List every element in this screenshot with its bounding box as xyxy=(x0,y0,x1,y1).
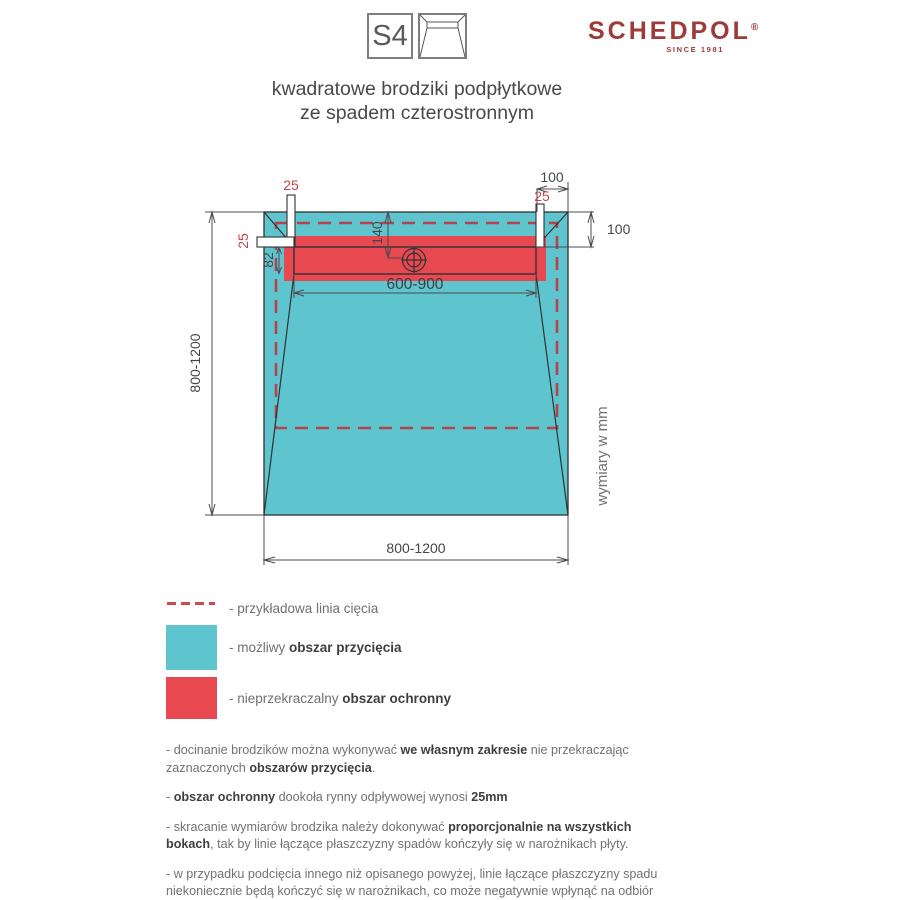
footnotes: - docinanie brodzików można wykonywać we… xyxy=(166,742,678,900)
product-code-badge: S4 xyxy=(367,13,413,59)
page: S4 SCHEDPOL® SINCE 1981 kwadratowe brodz… xyxy=(0,0,900,900)
dim-drain-offset: 140 xyxy=(369,221,385,245)
units-note: wymiary w mm xyxy=(594,406,611,506)
dim-tray-width: 800-1200 xyxy=(386,540,445,556)
legend-cut-area-label: - możliwy obszar przycięcia xyxy=(229,640,402,655)
dim-top-margin-25: 25 xyxy=(283,177,299,193)
dim-channel-width: 82 xyxy=(260,252,276,268)
tray-shape-icon xyxy=(418,13,467,59)
note-1: - docinanie brodzików można wykonywać we… xyxy=(166,742,678,777)
schedpol-logo: SCHEDPOL® SINCE 1981 xyxy=(588,15,748,54)
note-3: - skracanie wymiarów brodzika należy dok… xyxy=(166,819,678,854)
legend-cut-line-label: - przykładowa linia cięcia xyxy=(229,601,378,616)
page-title: kwadratowe brodziki podpłytkowe ze spade… xyxy=(167,78,667,125)
legend-cut-area-swatch xyxy=(166,625,217,670)
dim-tray-height: 800-1200 xyxy=(187,333,203,392)
technical-diagram: 25 25 25 100 100 140 82 600-900 800-1200… xyxy=(160,160,660,580)
dim-edge-offset-top: 100 xyxy=(540,169,564,185)
title-line-1: kwadratowe brodziki podpłytkowe xyxy=(167,78,667,102)
brand-tagline: SINCE 1981 xyxy=(588,45,724,54)
note-2: - obszar ochronny dookoła rynny odpływow… xyxy=(166,789,678,807)
note-4: - w przypadku podcięcia innego niż opisa… xyxy=(166,866,678,900)
title-line-2: ze spadem czterostronnym xyxy=(167,102,667,126)
legend-protect-area-label: - nieprzekraczalny obszar ochronny xyxy=(229,691,451,706)
legend-cut-line-swatch xyxy=(167,602,215,605)
legend-protect-area-swatch xyxy=(166,677,217,719)
brand-name: SCHEDPOL® xyxy=(588,15,748,44)
dim-right-margin-25: 25 xyxy=(534,188,550,204)
dim-left-margin-25: 25 xyxy=(235,233,251,249)
dim-edge-offset-right: 100 xyxy=(607,221,631,237)
registered-mark: ® xyxy=(751,22,758,33)
product-code: S4 xyxy=(372,20,407,53)
dim-channel-length: 600-900 xyxy=(387,276,444,293)
